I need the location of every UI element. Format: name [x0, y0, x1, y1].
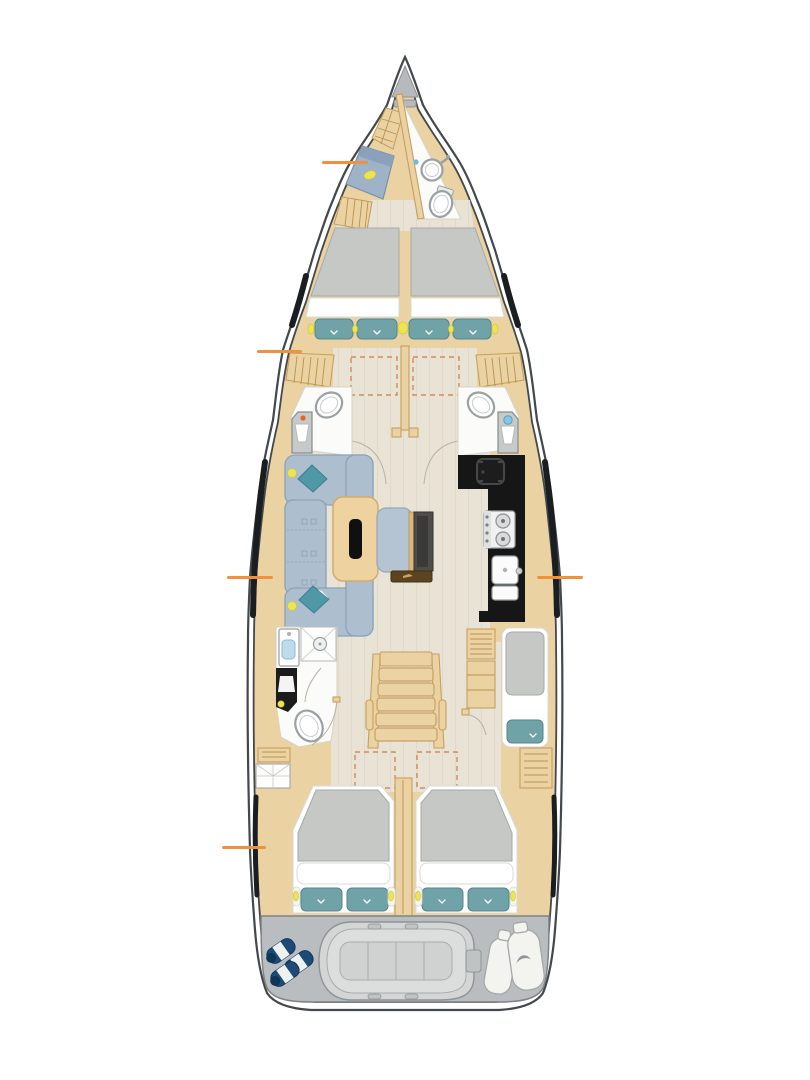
stairs-handle [366, 700, 373, 730]
door-leaf [462, 709, 469, 715]
galley-sink-lower-drain [503, 568, 507, 572]
pillow [357, 319, 397, 339]
transom-garage [261, 916, 549, 1002]
tv-bench [377, 508, 412, 572]
single-berth-mattress [506, 632, 544, 695]
aft-bed-port-duvet [298, 790, 389, 861]
stair-tread [377, 698, 435, 711]
aft-bathroom [276, 627, 340, 747]
center-bulkhead [401, 346, 409, 430]
aft-bathroom-sink-bowl [278, 676, 295, 692]
reading-light [416, 891, 421, 901]
pillow [507, 720, 543, 743]
port-head-faucet [300, 415, 305, 420]
dinghy-handle [368, 994, 381, 999]
stove-knob [485, 523, 488, 526]
stair-tread [379, 668, 433, 681]
galley-sink-lower2 [492, 586, 518, 600]
stove-knob [485, 539, 488, 542]
floorplan-svg [0, 0, 810, 1080]
yacht-deck-plan [0, 0, 810, 1080]
aft-bed-starboard-sheet [420, 863, 513, 884]
stairs-handle [439, 700, 446, 730]
reading-light [389, 891, 394, 901]
hotspot-marker-galley[interactable] [537, 576, 583, 579]
dinghy-handle [368, 924, 381, 929]
stove-burner-center [501, 537, 505, 541]
reading-light [398, 322, 408, 334]
port-head-sink-bowl [295, 424, 309, 442]
door-post [392, 428, 401, 437]
pillow [453, 319, 491, 339]
shower-drain-center [319, 643, 322, 646]
sail-bag-handle [513, 922, 528, 934]
starboard-hull-window-aft [553, 797, 555, 895]
forward-bed-port-sheet [306, 298, 399, 317]
port-side-locker [258, 748, 290, 762]
pillow [347, 888, 388, 911]
single-cabin-cabinet [467, 661, 495, 708]
aft-bathroom-light [278, 701, 284, 707]
stair-tread [378, 683, 434, 696]
bow-head-sink [422, 160, 443, 181]
forward-bed-starboard-sheet [411, 298, 504, 317]
pillow [301, 888, 342, 911]
hotspot-marker-salon[interactable] [227, 576, 273, 579]
pillow [315, 319, 353, 339]
reading-light [449, 325, 454, 333]
reading-light [353, 325, 358, 333]
aft-cabin-starboard [415, 786, 517, 913]
media-shelf [391, 571, 432, 582]
tv-cabinet-trim [409, 512, 414, 571]
stove-knob [485, 531, 488, 534]
aft-bathroom-basin [282, 640, 295, 659]
sofa-light [288, 469, 297, 478]
port-head [291, 387, 352, 456]
sofa-light [288, 602, 297, 611]
stove-knob [485, 515, 488, 518]
reading-light [492, 324, 498, 334]
aft-bed-port-sheet [297, 863, 390, 884]
anchor-locker [392, 66, 418, 107]
starboard-head-sink-bowl [501, 426, 515, 444]
stair-tread [375, 728, 437, 741]
stove-burner-center [501, 519, 505, 523]
dinghy [319, 922, 481, 1000]
stairs-landing [380, 652, 432, 666]
stair-tread [376, 713, 436, 726]
galley-faucet [516, 568, 522, 574]
dinghy-handle [405, 994, 418, 999]
pillow [422, 888, 463, 911]
door-leaf [333, 697, 340, 702]
bow-head-faucet-knob [446, 155, 450, 159]
galley-sink-drain [481, 470, 484, 473]
dinghy-transom-plate [466, 950, 481, 972]
aft-cabin-port [293, 786, 395, 913]
reading-light [511, 891, 516, 901]
salon-table-inlay [349, 519, 362, 559]
bow-head-blue-fitting [413, 159, 418, 164]
starboard-head-basin [504, 416, 512, 424]
aft-bathroom-basin-faucet [287, 632, 291, 636]
starboard-head [458, 387, 519, 456]
hotspot-marker-forward-cabin[interactable] [257, 350, 302, 353]
pillow [409, 319, 449, 339]
door-post [409, 428, 418, 437]
reading-light [308, 324, 314, 334]
pillow [468, 888, 509, 911]
tv-screen-glass [417, 516, 428, 567]
reading-light [294, 891, 299, 901]
aft-bed-starboard-duvet [421, 790, 512, 861]
dinghy-handle [405, 924, 418, 929]
hotspot-marker-aft-cabin[interactable] [222, 846, 266, 849]
aft-center-bulkhead [395, 778, 412, 916]
hotspot-marker-crew-cabin[interactable] [322, 161, 368, 164]
